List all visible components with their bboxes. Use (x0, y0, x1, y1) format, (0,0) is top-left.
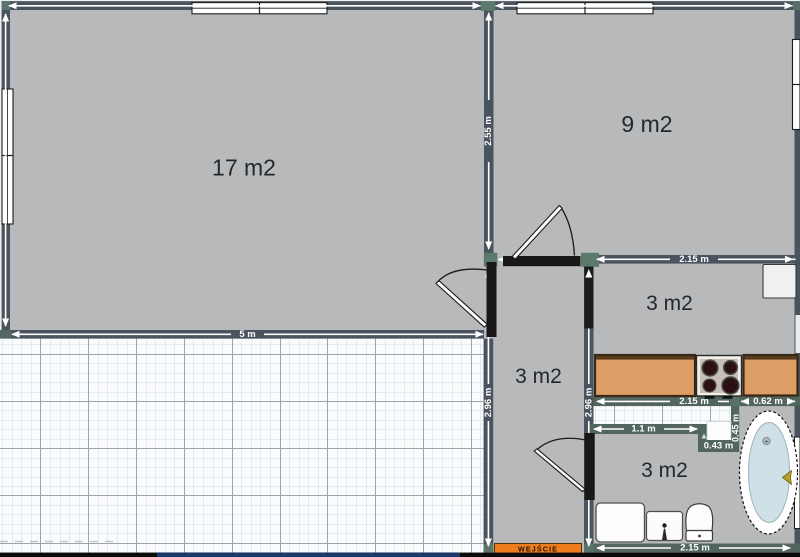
svg-text:0.62 m: 0.62 m (753, 396, 783, 407)
svg-text:3 m2: 3 m2 (515, 365, 562, 388)
svg-text:17 m2: 17 m2 (212, 155, 276, 181)
svg-text:WEJŚCIE: WEJŚCIE (518, 545, 558, 554)
svg-text:2.15 m: 2.15 m (679, 396, 709, 407)
svg-text:0.45 m: 0.45 m (730, 414, 740, 442)
svg-text:2.96 m: 2.96 m (583, 388, 594, 418)
svg-text:5 m: 5 m (239, 329, 255, 340)
svg-text:2.15 m: 2.15 m (680, 543, 710, 554)
svg-text:2.96 m: 2.96 m (483, 388, 494, 418)
svg-text:2.55 m: 2.55 m (483, 116, 494, 146)
svg-text:9 m2: 9 m2 (621, 111, 672, 137)
svg-text:1.1 m: 1.1 m (631, 424, 655, 435)
svg-text:2.15 m: 2.15 m (679, 254, 709, 265)
svg-text:3 m2: 3 m2 (646, 292, 693, 315)
svg-text:3 m2: 3 m2 (641, 459, 688, 482)
svg-text:0.43 m: 0.43 m (704, 441, 734, 452)
